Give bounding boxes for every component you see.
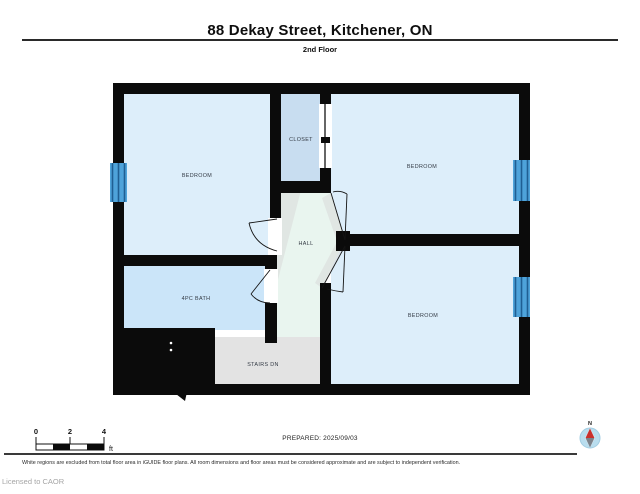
footer-divider [4,453,577,455]
room-label-hall: HALL [299,241,314,247]
door-opening [264,269,278,303]
wall [342,234,530,246]
wall-corner-block [113,328,215,395]
stair-dot [170,342,173,345]
wall [320,283,331,384]
wall [270,181,331,193]
room-label-bedroom-top-right: BEDROOM [407,164,437,170]
room-label-bedroom-bottom-right: BEDROOM [408,313,438,319]
wall [265,266,277,269]
door-opening [268,218,282,255]
license-text: Licensed to CAOR [2,477,64,486]
wall [320,94,331,104]
room-label-bath: 4PC BATH [182,296,211,302]
window-right-bottom [513,277,530,317]
compass-north-label: N [588,421,592,427]
stair-dot [170,349,173,352]
wall [113,255,277,266]
wall [320,168,331,181]
wall [270,94,281,218]
prepared-date: PREPARED: 2025/09/03 [0,435,640,442]
disclaimer-text: White regions are excluded from total fl… [22,460,562,466]
wall [265,303,277,343]
room-label-stairs: STAIRS DN [247,362,279,368]
floorplan-drawing: BEDROOM CLOSET BEDROOM HALL 4PC BATH BED… [0,0,640,494]
floorplan-page: 88 Dekay Street, Kitchener, ON 2nd Floor [0,0,640,494]
room-label-closet: CLOSET [289,137,313,143]
scale-unit: ft [109,446,113,453]
room-label-bedroom-left: BEDROOM [182,173,212,179]
window-right-top [513,160,530,201]
window-left [110,163,127,202]
